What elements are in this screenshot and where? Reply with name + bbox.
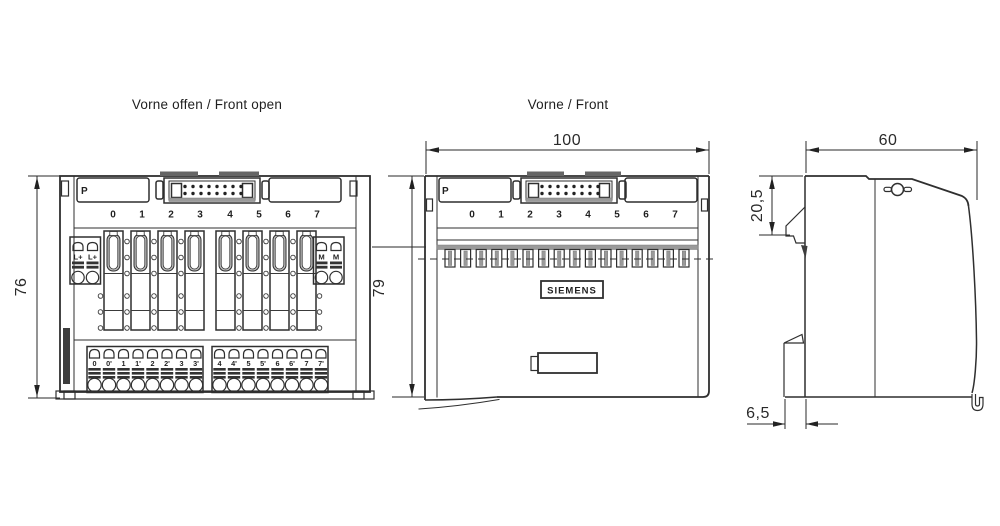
channel-number: 6 — [643, 210, 649, 221]
channel-slot — [131, 231, 150, 330]
terminal-label: 4 — [217, 359, 222, 368]
dimension-6-5: 6,5 — [746, 399, 838, 429]
dim-79-value: 79 — [371, 279, 388, 298]
test-point-circles — [152, 239, 157, 276]
test-point-circles — [179, 294, 184, 331]
cover-latch — [262, 181, 269, 199]
channel-slot — [270, 231, 289, 330]
clamp — [539, 250, 549, 268]
power-label: L+ — [73, 253, 83, 262]
test-point-circles — [317, 294, 322, 331]
terminal — [117, 350, 130, 392]
dimension-100: 100 — [426, 132, 709, 174]
test-point-circles — [291, 294, 296, 331]
terminal — [285, 350, 298, 392]
test-point-circles — [264, 239, 269, 276]
cover-latch — [156, 181, 163, 199]
label-holder-tab — [531, 357, 538, 371]
test-point-circles — [291, 239, 296, 276]
channel-number: 1 — [498, 210, 504, 221]
brand-logo: SIEMENS — [547, 286, 597, 297]
clamp — [492, 250, 502, 268]
channel-number: 4 — [227, 210, 233, 221]
terminal — [242, 350, 255, 392]
clamp — [461, 250, 471, 268]
power-label: M — [333, 253, 339, 262]
cover-plate-left — [77, 178, 149, 202]
dimension-76: 76 — [13, 176, 60, 398]
clamp — [617, 250, 627, 268]
terminal-strip: 0 0' 1 1' 2 2' 3 3' 4 4' 5 5' 6 6' 7 7' — [87, 347, 328, 393]
channel-number: 1 — [139, 210, 145, 221]
test-point-circles — [98, 294, 103, 331]
test-point-circles — [237, 239, 242, 276]
cover-plate-right — [269, 178, 341, 202]
clamp — [476, 250, 486, 268]
label-holder — [538, 353, 597, 373]
terminal-label: 7 — [304, 359, 308, 368]
dim-100-value: 100 — [553, 132, 581, 149]
channel-number: 3 — [197, 210, 203, 221]
dim-6-5-value: 6,5 — [746, 405, 770, 422]
cover-plate-left — [439, 178, 511, 202]
front-view: Vorne / Front 100 79 — [371, 97, 714, 409]
channel-number: 7 — [672, 210, 678, 221]
terminal-label: 6 — [275, 359, 279, 368]
side-view: 60 20,5 6,5 — [746, 132, 983, 429]
channel-slot — [158, 231, 177, 330]
channel-number: 4 — [585, 210, 591, 221]
cover-plate-right — [625, 178, 697, 202]
channel-slot — [243, 231, 262, 330]
terminal-label: 4' — [231, 359, 237, 368]
power-label: L+ — [88, 253, 98, 262]
terminal — [271, 350, 284, 392]
terminal-label: 3 — [179, 359, 183, 368]
terminal — [189, 350, 202, 392]
channel-number: 2 — [527, 210, 533, 221]
test-point-circles — [179, 239, 184, 276]
test-point-circles — [237, 294, 242, 331]
bus-p-label: P — [81, 186, 88, 197]
channel-slots — [98, 231, 322, 330]
clamp — [523, 250, 533, 268]
clamp — [554, 250, 564, 268]
terminal-label: 5 — [246, 359, 250, 368]
terminal — [256, 350, 269, 392]
clamp — [648, 250, 658, 268]
dimension-79: 79 — [371, 176, 426, 397]
terminal-label: 2' — [164, 359, 170, 368]
channel-slot — [104, 231, 123, 330]
clamp — [507, 250, 517, 268]
terminal-label: 7' — [318, 359, 324, 368]
terminal-label: 0 — [92, 359, 96, 368]
test-point-circles — [152, 294, 157, 331]
bus-connector — [521, 178, 617, 203]
terminal — [146, 350, 159, 392]
terminal-label: 2 — [150, 359, 154, 368]
channel-number: 3 — [556, 210, 562, 221]
terminal — [88, 350, 101, 392]
technical-drawing-page: Vorne offen / Front open 76 — [0, 0, 1000, 526]
terminal-label: 6' — [289, 359, 295, 368]
terminal-label: 1 — [121, 359, 125, 368]
dim-76-value: 76 — [13, 278, 30, 297]
dimension-drawing-canvas: Vorne offen / Front open 76 — [0, 0, 1000, 526]
channel-number: 6 — [285, 210, 291, 221]
front-open-cover-strip: P — [77, 178, 341, 203]
front-cover-strip: P — [439, 178, 697, 203]
terminal — [175, 350, 188, 392]
clamp — [663, 250, 673, 268]
din-rail-guide — [784, 335, 804, 398]
dimension-20-5: 20,5 — [749, 176, 803, 235]
channel-number: 0 — [469, 210, 475, 221]
screw-icon — [884, 184, 912, 196]
channel-number: 7 — [314, 210, 320, 221]
front-branding: SIEMENS — [531, 281, 603, 373]
front-flap — [418, 228, 714, 267]
test-point-circles — [125, 239, 130, 276]
clamp — [601, 250, 611, 268]
channel-slot — [185, 231, 204, 330]
test-point-circles — [125, 294, 130, 331]
dim-60-value: 60 — [879, 132, 898, 149]
channel-number: 2 — [168, 210, 174, 221]
channel-number: 5 — [256, 210, 262, 221]
terminal-label: 0' — [106, 359, 112, 368]
channel-slot — [216, 231, 235, 330]
terminal-label: 3' — [193, 359, 199, 368]
front-open-title: Vorne offen / Front open — [132, 97, 282, 112]
cover-latch — [513, 181, 520, 199]
terminal — [160, 350, 173, 392]
bus-p-label: P — [442, 186, 449, 197]
clamp — [570, 250, 580, 268]
clamp — [679, 250, 689, 268]
front-open-view: Vorne offen / Front open 76 — [13, 97, 374, 399]
test-point-circles — [264, 294, 269, 331]
terminal-label: 5' — [260, 359, 266, 368]
clamp — [632, 250, 642, 268]
clamp — [585, 250, 595, 268]
bus-connector — [164, 178, 260, 203]
front-open-channel-numbers: 0 1 2 3 4 5 6 7 — [110, 210, 320, 221]
clamp — [445, 250, 455, 268]
mounting-hook — [972, 394, 983, 411]
side-body-outline — [785, 176, 983, 411]
power-label: M — [318, 253, 324, 262]
channel-number: 5 — [614, 210, 620, 221]
terminal — [314, 350, 327, 392]
terminal — [213, 350, 226, 392]
front-channel-numbers: 0 1 2 3 4 5 6 7 — [469, 210, 678, 221]
terminal — [300, 350, 313, 392]
terminal — [227, 350, 240, 392]
terminal — [102, 350, 115, 392]
terminal — [131, 350, 144, 392]
front-title: Vorne / Front — [528, 97, 609, 112]
dim-20-5-value: 20,5 — [749, 189, 766, 222]
terminal-label: 1' — [135, 359, 141, 368]
channel-number: 0 — [110, 210, 116, 221]
